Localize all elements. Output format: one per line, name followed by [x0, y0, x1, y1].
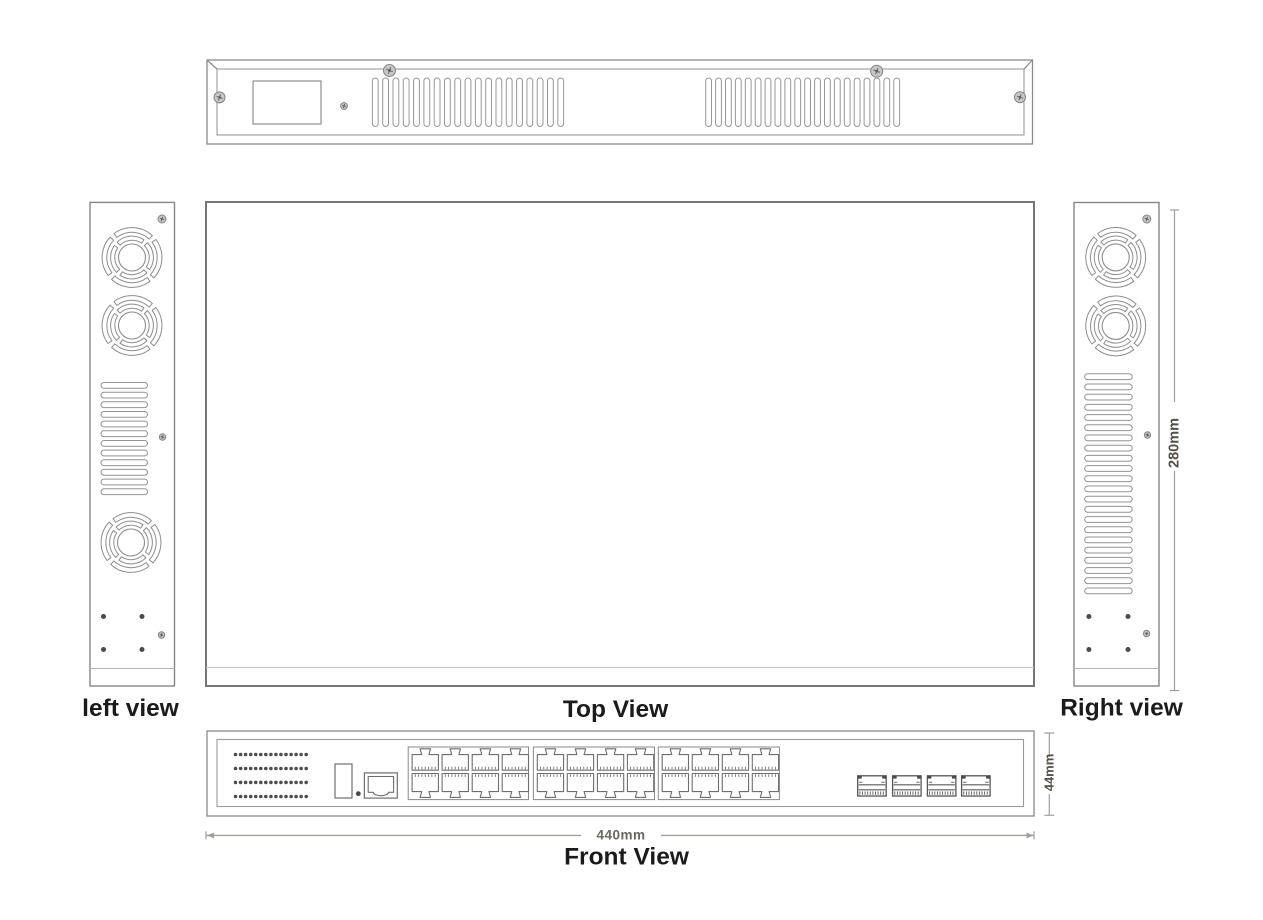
svg-text:280mm: 280mm	[1167, 418, 1183, 468]
svg-text:Front View: Front View	[564, 844, 690, 871]
svg-text:440mm: 440mm	[596, 827, 645, 842]
svg-text:Right view: Right view	[1060, 695, 1183, 722]
svg-text:44mm: 44mm	[1042, 754, 1057, 792]
svg-text:left view: left view	[82, 695, 180, 722]
svg-text:Top View: Top View	[563, 696, 669, 723]
